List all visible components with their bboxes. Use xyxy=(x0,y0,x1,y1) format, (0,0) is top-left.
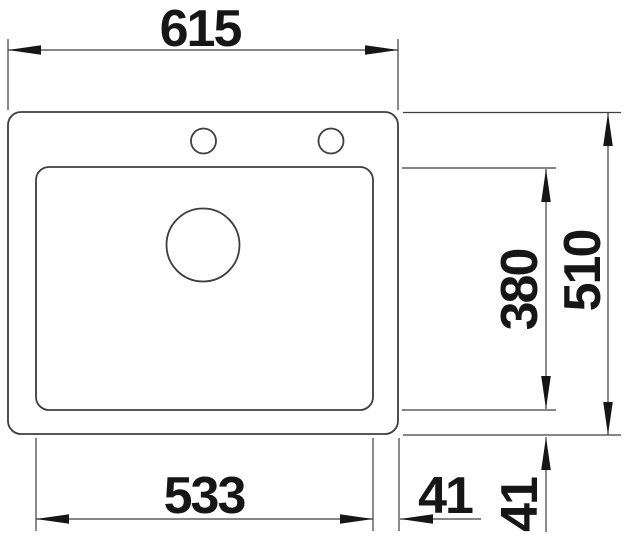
dim-basin-to-bottom-edge: 41 xyxy=(491,437,551,532)
arrowhead-left-icon xyxy=(8,45,41,55)
dimension-drawing: 615 510 380 41 xyxy=(0,0,625,540)
dim-label-basin-to-bottom-edge: 41 xyxy=(491,477,549,532)
dim-basin-depth: 380 xyxy=(402,168,556,410)
arrowhead-right-icon xyxy=(340,514,373,524)
arrowhead-up-icon xyxy=(603,113,613,146)
arrowhead-up-icon xyxy=(541,437,551,470)
arrowhead-up-icon xyxy=(541,169,551,202)
drawing-canvas: 615 510 380 41 xyxy=(0,0,625,540)
dim-label-overall-width: 615 xyxy=(160,0,242,58)
dim-overall-width: 615 xyxy=(8,0,398,110)
arrowhead-down-icon xyxy=(603,402,613,435)
dim-label-basin-depth: 380 xyxy=(491,250,549,331)
arrowhead-left-icon xyxy=(36,514,69,524)
faucet-hole-right xyxy=(319,129,344,154)
drain-hole xyxy=(167,209,240,282)
dim-basin-to-right-edge: 41 xyxy=(400,467,481,525)
dim-label-basin-to-right-edge: 41 xyxy=(418,467,473,525)
arrowhead-right-icon xyxy=(365,45,398,55)
arrowhead-down-icon xyxy=(541,376,551,409)
dim-label-basin-width: 533 xyxy=(164,467,246,525)
sink-outer-outline xyxy=(8,112,398,434)
dim-label-overall-depth: 510 xyxy=(554,231,612,312)
dim-basin-width: 533 xyxy=(36,438,399,531)
faucet-hole-left xyxy=(191,129,216,154)
basin-outline xyxy=(36,167,373,410)
sink-top-view xyxy=(8,112,398,434)
